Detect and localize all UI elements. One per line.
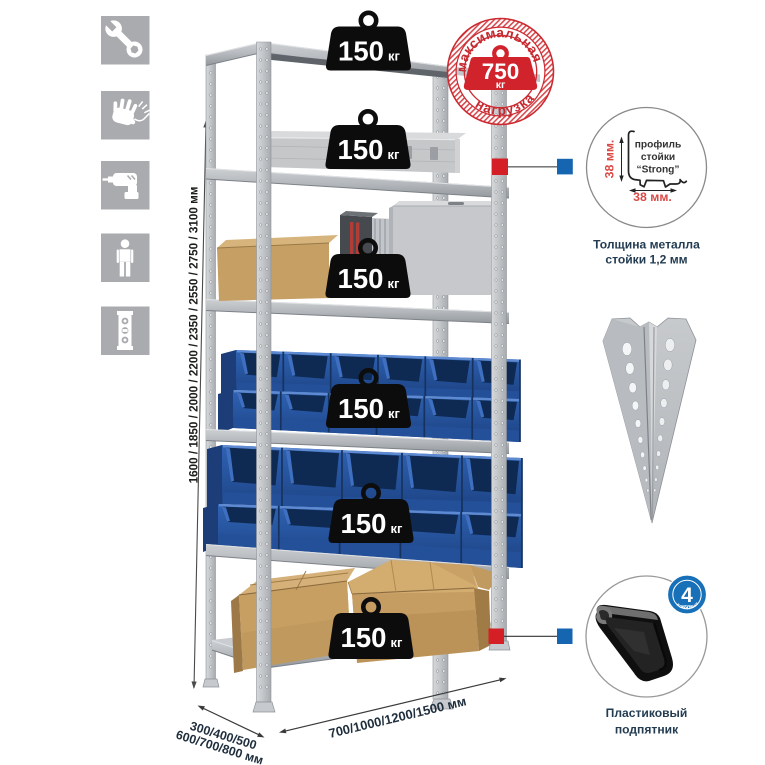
svg-text:150: 150 bbox=[341, 622, 387, 653]
svg-text:кг: кг bbox=[388, 49, 401, 64]
svg-text:“Strong”: “Strong” bbox=[636, 165, 679, 176]
svg-text:кг: кг bbox=[391, 635, 404, 650]
svg-text:кг: кг bbox=[388, 276, 401, 291]
svg-text:150: 150 bbox=[338, 134, 384, 165]
svg-text:150: 150 bbox=[341, 508, 387, 539]
svg-text:стойки 1,2 мм: стойки 1,2 мм bbox=[605, 253, 687, 267]
svg-text:кг: кг bbox=[496, 79, 506, 91]
svg-text:150: 150 bbox=[338, 36, 384, 67]
svg-text:1600 / 1850 / 2000 / 2200 / 23: 1600 / 1850 / 2000 / 2200 / 2350 / 2550 … bbox=[188, 187, 201, 484]
svg-text:стойки: стойки bbox=[641, 152, 675, 163]
svg-text:Толщина металла: Толщина металла bbox=[593, 238, 700, 252]
svg-text:кг: кг bbox=[388, 406, 401, 421]
svg-text:150: 150 bbox=[338, 393, 384, 424]
svg-text:Пластиковый: Пластиковый bbox=[606, 706, 688, 720]
svg-text:38 мм.: 38 мм. bbox=[633, 190, 672, 204]
svg-text:кг: кг bbox=[388, 147, 401, 162]
svg-text:профиль: профиль bbox=[635, 139, 682, 151]
svg-text:150: 150 bbox=[338, 263, 384, 294]
svg-text:кг: кг bbox=[391, 521, 404, 536]
svg-text:38 мм.: 38 мм. bbox=[603, 140, 617, 179]
svg-text:подпятник: подпятник bbox=[615, 723, 679, 737]
